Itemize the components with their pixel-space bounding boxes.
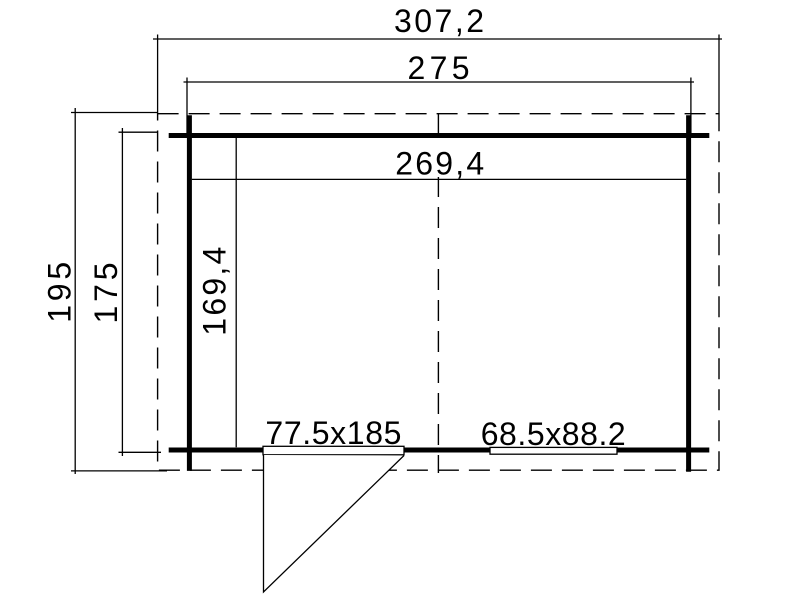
svg-text:275: 275: [408, 50, 470, 86]
svg-text:195: 195: [42, 262, 78, 323]
svg-text:307,2: 307,2: [394, 3, 484, 39]
svg-text:68.5x88.2: 68.5x88.2: [481, 416, 626, 452]
svg-text:169,4: 169,4: [197, 247, 233, 336]
svg-text:77.5x185: 77.5x185: [265, 415, 401, 451]
svg-text:269,4: 269,4: [395, 145, 484, 181]
svg-text:175: 175: [88, 263, 124, 324]
